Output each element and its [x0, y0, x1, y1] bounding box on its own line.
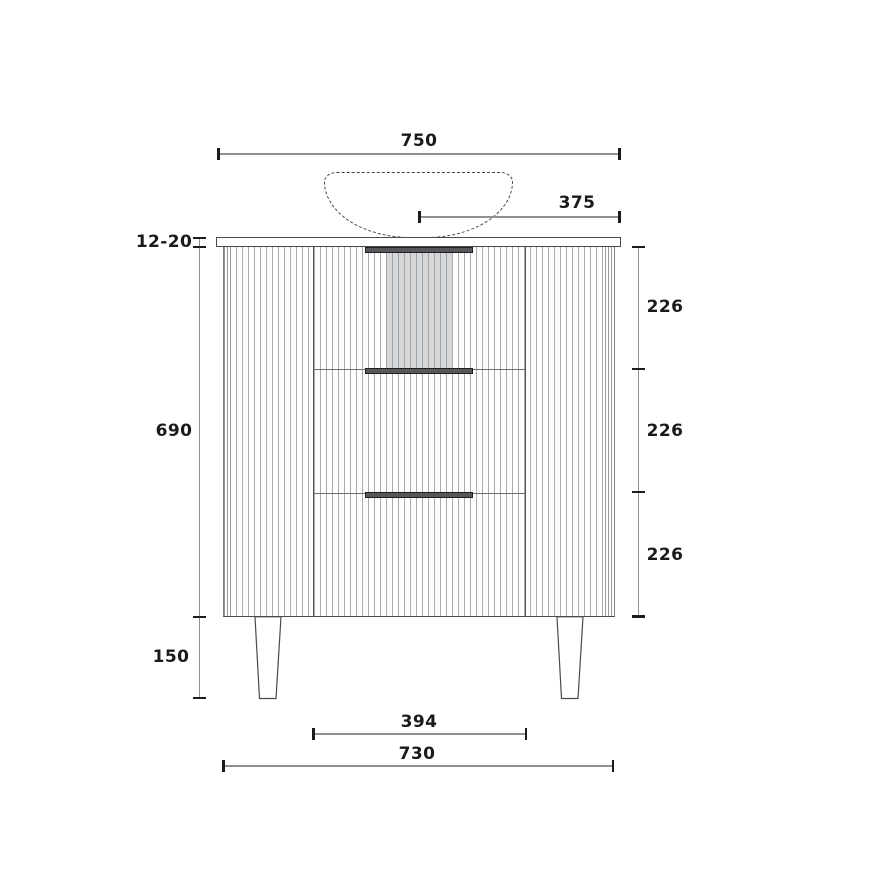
- dim-label-top-width: 750: [401, 131, 438, 151]
- dim-line-basin-offset: [419, 216, 620, 218]
- dim-label-drawer-2-height: 226: [647, 421, 684, 441]
- left-leg: [254, 616, 282, 700]
- right-leg: [556, 616, 584, 700]
- dim-label-leg-height: 150: [153, 647, 190, 667]
- dim-tick: [193, 697, 206, 700]
- dim-line-top-width: [218, 153, 620, 155]
- cabinet-left-rounded-edge: [224, 247, 233, 616]
- dim-line-cabinet-width: [223, 765, 613, 767]
- dim-label-countertop-thickness: 12-20: [136, 232, 192, 252]
- basin-recess-shading: [386, 239, 452, 369]
- dim-tick: [193, 237, 206, 240]
- dim-tick: [632, 615, 645, 618]
- cabinet-divider-left: [313, 247, 315, 617]
- dim-tick: [618, 211, 621, 223]
- dim-label-cabinet-width: 730: [399, 744, 436, 764]
- dim-label-basin-offset: 375: [559, 193, 596, 213]
- dim-tick: [193, 246, 206, 249]
- basin-dashed-outline: [324, 172, 513, 238]
- drawer-handle-2: [365, 368, 473, 374]
- drawer-handle-1: [365, 247, 473, 253]
- cabinet-right-rounded-edge: [605, 247, 614, 616]
- dim-tick: [632, 491, 645, 494]
- dim-tick: [525, 728, 528, 740]
- dim-tick: [312, 728, 315, 740]
- cabinet-divider-right: [525, 247, 527, 617]
- dim-label-drawer-3-height: 226: [647, 545, 684, 565]
- dim-line-left-chain: [199, 238, 200, 698]
- dim-line-leg-span: [313, 733, 526, 735]
- dim-label-drawer-1-height: 226: [647, 297, 684, 317]
- dim-tick: [632, 246, 645, 249]
- drawer-handle-3: [365, 492, 473, 498]
- dim-label-cabinet-height: 690: [156, 421, 193, 441]
- dim-tick: [632, 368, 645, 371]
- dim-tick: [418, 211, 421, 223]
- vanity-technical-drawing: 750 375 12-20 690 150 226 226 226 394 73…: [0, 0, 870, 872]
- countertop: [216, 237, 621, 247]
- dim-tick: [222, 760, 225, 772]
- dim-tick: [618, 148, 621, 160]
- dim-line-right-chain: [638, 247, 639, 617]
- dim-tick: [193, 616, 206, 619]
- dim-label-leg-span: 394: [401, 712, 438, 732]
- dim-tick: [612, 760, 615, 772]
- dim-tick: [217, 148, 220, 160]
